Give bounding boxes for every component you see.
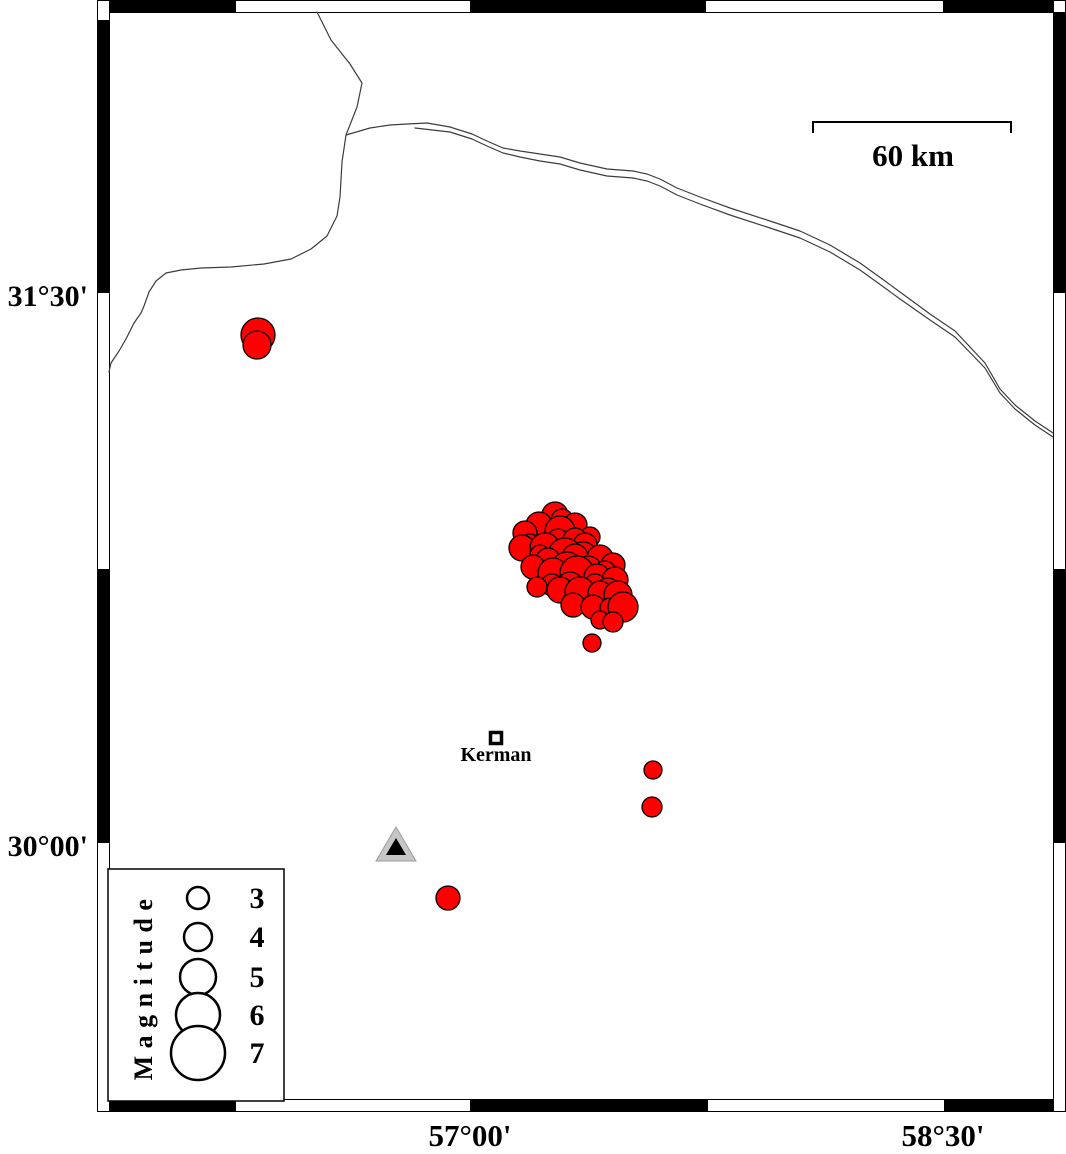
axis-label-lon-57-00: 57°00': [428, 1118, 511, 1153]
frame-segment-bottom: [109, 1100, 236, 1112]
frame-segment-right: [1054, 569, 1066, 843]
axis-label-lon-58-30: 58°30': [901, 1118, 984, 1153]
boundary-line-east-lower: [415, 128, 1053, 437]
legend-label-mag-7: 7: [250, 1037, 265, 1070]
earthquake-marker: [436, 886, 460, 910]
earthquake-marker: [644, 761, 662, 779]
earthquake-marker: [603, 612, 623, 632]
earthquake-epicenters: [241, 318, 662, 910]
seismicity-map-figure: 60 km Kerman 31°30' 30°00' 57°00' 58°30'…: [0, 0, 1066, 1154]
legend-circle-mag-5: [180, 959, 216, 995]
frame-segment-top: [943, 0, 1054, 12]
legend-circle-mag-3: [187, 887, 209, 909]
city-square-icon: [491, 733, 502, 744]
legend-circle-mag-4: [184, 923, 212, 951]
city-marker-kerman: Kerman: [460, 733, 531, 767]
scale-bar-bracket-icon: [813, 122, 1011, 133]
legend-label-mag-4: 4: [250, 921, 265, 954]
frame-segment-right: [1054, 12, 1066, 293]
boundary-line-west: [109, 135, 346, 372]
axis-label-lat-31-30: 31°30': [8, 280, 88, 313]
boundary-lines: [109, 12, 1053, 437]
axis-label-lat-30-00: 30°00': [8, 830, 88, 863]
scale-bar: 60 km: [813, 122, 1011, 173]
legend-label-mag-3: 3: [250, 882, 265, 915]
frame-segment-top: [470, 0, 706, 12]
legend-circle-mag-7: [171, 1026, 225, 1080]
city-label: Kerman: [460, 744, 531, 766]
boundary-line-north: [317, 12, 362, 135]
earthquake-marker: [642, 797, 662, 817]
map-canvas: 60 km Kerman 31°30' 30°00' 57°00' 58°30'…: [0, 0, 1066, 1154]
frame-segment-bottom: [944, 1100, 1054, 1112]
station-marker: [376, 827, 416, 861]
earthquake-marker: [583, 634, 601, 652]
frame-segment-left: [97, 569, 109, 843]
frame-segment-bottom: [470, 1100, 708, 1112]
legend-label-mag-6: 6: [250, 999, 265, 1032]
legend-label-mag-5: 5: [250, 961, 265, 994]
earthquake-marker: [527, 577, 547, 597]
scale-bar-label: 60 km: [872, 138, 954, 173]
magnitude-legend: Magnitude 34567: [108, 869, 284, 1101]
legend-title: Magnitude: [129, 892, 158, 1081]
frame-segment-left: [97, 20, 109, 293]
earthquake-marker: [243, 331, 271, 359]
frame-segment-top: [109, 0, 236, 12]
